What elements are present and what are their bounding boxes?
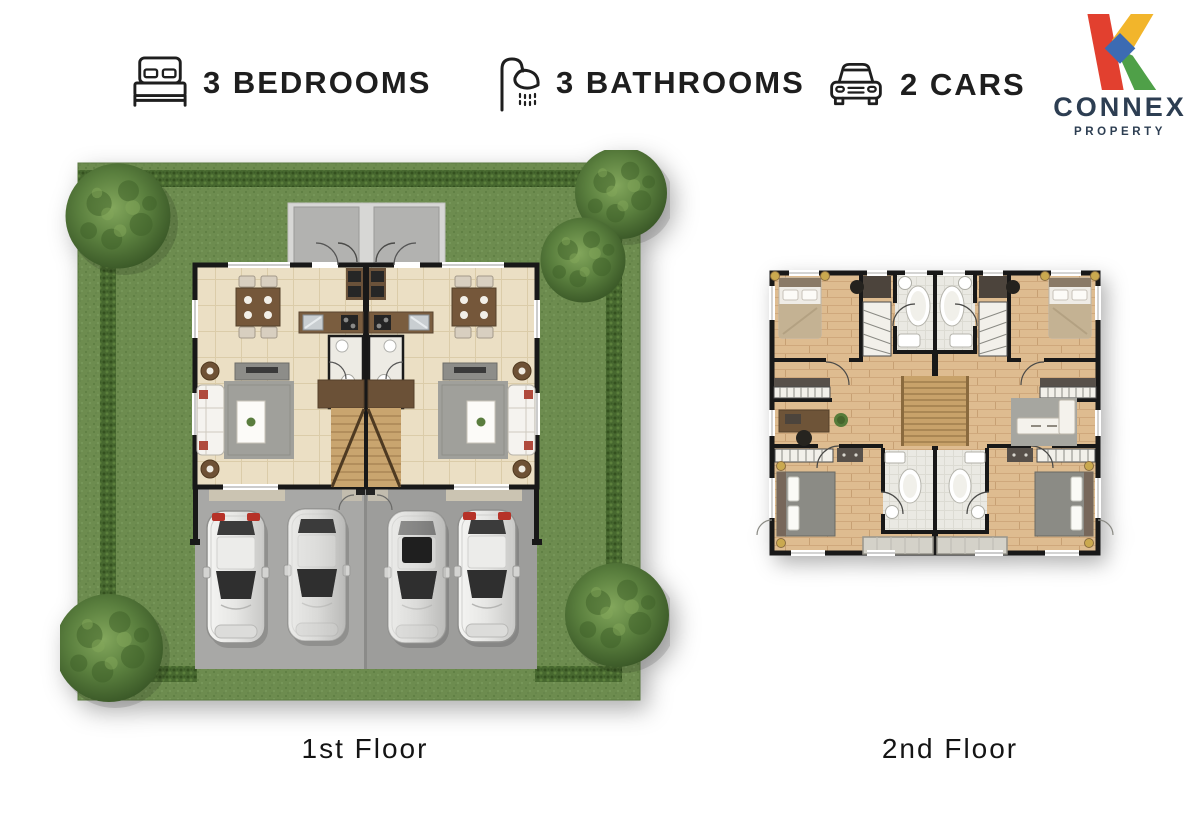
- first-floor-plan: [60, 150, 670, 710]
- second-floor-plan: [755, 250, 1125, 580]
- entry-patios: [288, 203, 445, 265]
- feature-cars-label: 2 CARS: [900, 67, 1026, 103]
- connex-x-icon: [1073, 14, 1167, 90]
- shower-icon: [496, 54, 542, 112]
- feature-cars: 2 CARS: [826, 55, 1026, 115]
- duplex-building: [192, 243, 540, 490]
- feature-bedrooms-label: 3 BEDROOMS: [203, 65, 431, 101]
- feature-bathrooms-label: 3 BATHROOMS: [556, 65, 805, 101]
- feature-bathrooms: 3 BATHROOMS: [496, 53, 805, 113]
- bed-icon: [131, 55, 189, 111]
- connex-logo: CONNEX PROPERTY: [1044, 14, 1196, 138]
- floor-plan-sheet: 3 BEDROOMS 3 BATHROOMS 2 CARS: [0, 0, 1200, 838]
- car-icon: [826, 61, 886, 109]
- first-floor-label: 1st Floor: [60, 733, 670, 765]
- second-floor-label: 2nd Floor: [755, 733, 1145, 765]
- logo-brand: CONNEX: [1053, 92, 1187, 123]
- feature-bedrooms: 3 BEDROOMS: [131, 53, 431, 113]
- logo-subtitle: PROPERTY: [1074, 126, 1166, 138]
- upper-lounge: [1011, 398, 1077, 446]
